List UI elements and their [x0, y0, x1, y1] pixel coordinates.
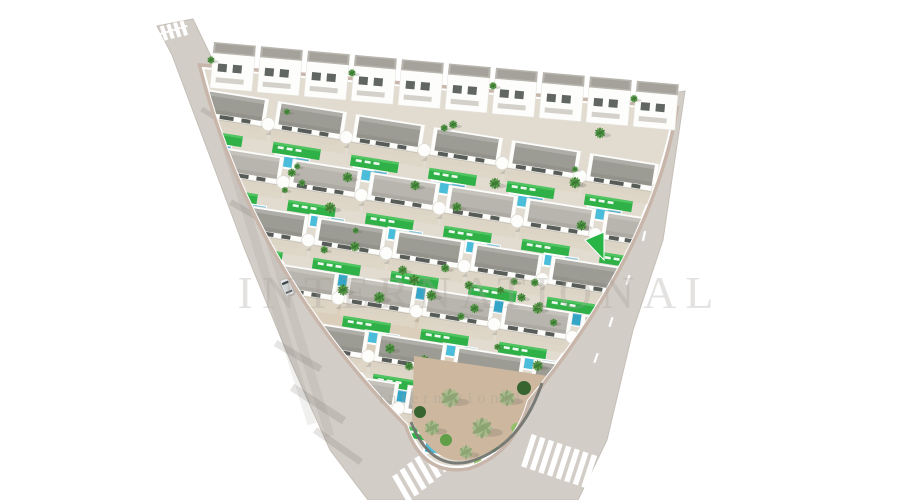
house-window [279, 69, 289, 78]
villa-roof [668, 169, 733, 199]
house-window [593, 98, 603, 107]
villa-stair [666, 240, 681, 255]
house-window [514, 91, 524, 100]
palm-crown [329, 206, 332, 209]
palm-crown [354, 245, 356, 247]
villa-window [724, 254, 734, 259]
palm-crown [210, 59, 212, 61]
palm-crown [536, 364, 539, 367]
house-window [311, 72, 321, 81]
house-window [232, 65, 242, 74]
palm-crown [351, 72, 353, 74]
roof-highlight [686, 227, 748, 241]
villa-window [709, 196, 719, 201]
house-window [405, 81, 415, 90]
house-window [452, 85, 462, 94]
house-window [640, 102, 650, 111]
pool-deep-end [646, 326, 661, 340]
villa-stair [729, 195, 744, 210]
villa-window [687, 193, 701, 199]
skyline-house [398, 59, 444, 108]
palm-crown [286, 111, 288, 113]
house-window [217, 63, 227, 72]
house-window [467, 86, 477, 95]
villa-stair [744, 253, 759, 268]
palm-crown [464, 450, 467, 453]
roof-shade [683, 243, 745, 257]
villa-body [679, 224, 753, 263]
house-window [420, 82, 430, 91]
palm-crown [284, 189, 286, 191]
villa-window [672, 190, 683, 196]
palm-crown [574, 181, 577, 184]
palm-crown [574, 168, 576, 170]
villa-terrace [659, 194, 736, 219]
palm-crown [492, 85, 494, 87]
palm-crown [414, 184, 416, 186]
palm-crown [580, 224, 583, 227]
lawn-highlight [663, 207, 711, 217]
palm-crown [389, 347, 392, 350]
palm-crown [456, 206, 458, 208]
house-window [546, 94, 556, 103]
skyline-house [210, 42, 256, 91]
palm-crown [301, 182, 303, 184]
villa-window [702, 251, 716, 257]
house-window [326, 73, 336, 82]
palm-crown [497, 346, 499, 348]
aerial-development-render: INTERNATIONAL international [0, 0, 900, 500]
house-window [264, 68, 274, 77]
skyline-house [492, 68, 538, 117]
house-window [358, 76, 368, 85]
pool-deep-end [684, 223, 699, 237]
roof-highlight [671, 169, 733, 183]
villa-lawn [662, 207, 711, 225]
sun-lounger [215, 191, 221, 195]
skyline-house [633, 81, 679, 130]
house-window [373, 78, 383, 87]
palm-crown [599, 132, 602, 135]
aerial-render-svg: INTERNATIONAL international [0, 0, 900, 500]
palm-crown [494, 182, 497, 185]
house-window [655, 103, 665, 112]
watermark-text-large: INTERNATIONAL [238, 267, 723, 318]
palm-crown [553, 322, 555, 324]
palm-crown [452, 124, 454, 126]
palm-crown [633, 98, 635, 100]
house-window [608, 99, 618, 108]
villa-body [664, 166, 738, 205]
bush [414, 406, 426, 418]
sun-lounger [668, 211, 674, 215]
render-layers [157, 19, 762, 500]
villa-roof [683, 227, 748, 257]
villa-window [687, 248, 698, 254]
skyline-house [586, 76, 632, 125]
house-window [499, 89, 509, 98]
skyline-house [539, 72, 585, 121]
skyline-house [257, 46, 303, 95]
sun-lounger [685, 214, 691, 218]
roof-shade [668, 185, 730, 199]
skyline-house [351, 55, 397, 104]
bush [440, 434, 452, 446]
palm-crown [430, 426, 434, 430]
palm-crown [296, 166, 298, 168]
palm-crown [355, 230, 357, 232]
villa-stair [643, 343, 658, 358]
skyline-house [445, 64, 491, 113]
watermark-text-small: international [379, 390, 525, 407]
palm-crown [443, 127, 445, 129]
sun-lounger [676, 212, 682, 216]
skyline-house [304, 51, 350, 100]
villa-pool [664, 219, 699, 236]
palm-crown [291, 172, 293, 174]
palm-crown [323, 249, 325, 251]
palm-crown [346, 176, 349, 179]
palm-crown [408, 365, 410, 367]
house-window [561, 95, 571, 104]
palm-crown [479, 425, 484, 430]
